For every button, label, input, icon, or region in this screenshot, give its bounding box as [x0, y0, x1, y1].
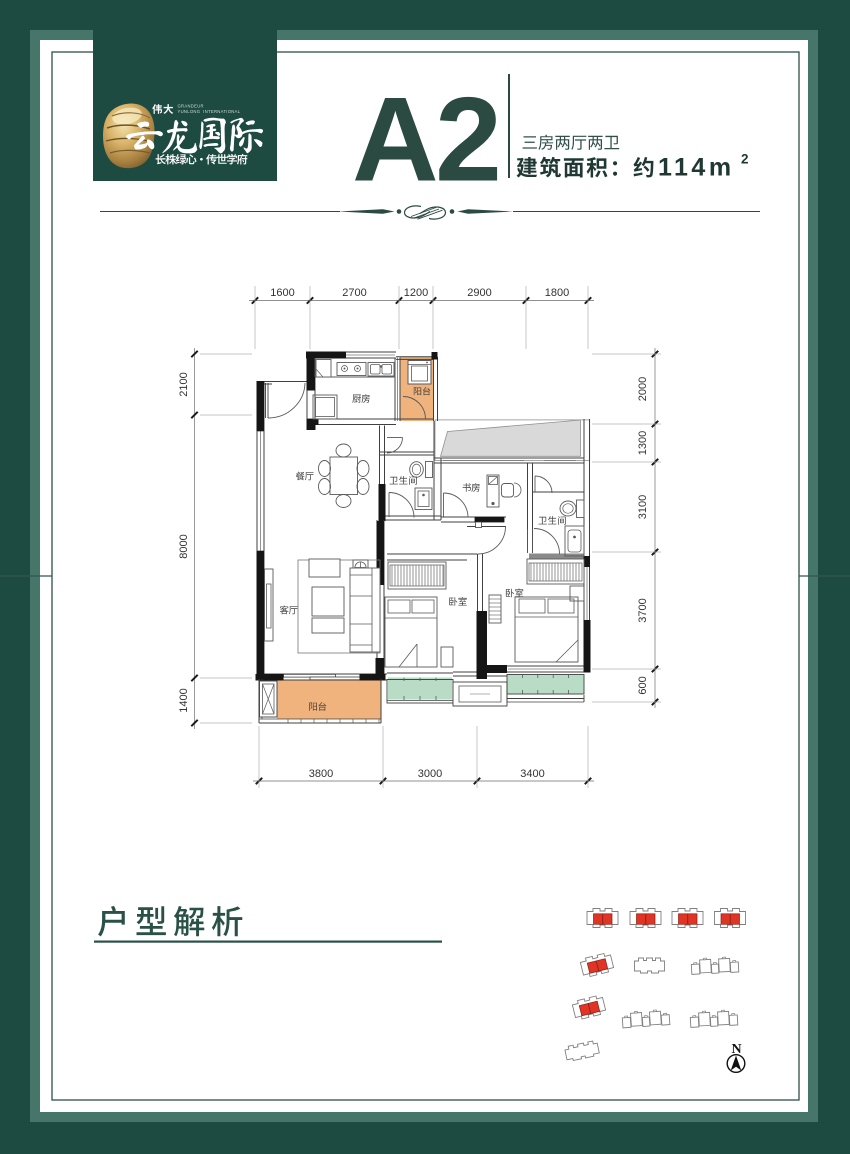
svg-text:1400: 1400	[178, 688, 190, 712]
svg-text:2: 2	[741, 152, 749, 167]
svg-text:A2: A2	[352, 73, 498, 207]
svg-text:3800: 3800	[309, 768, 333, 780]
svg-text:2700: 2700	[342, 287, 366, 299]
svg-text:600: 600	[637, 676, 649, 694]
svg-text:3100: 3100	[637, 495, 649, 519]
svg-text:1300: 1300	[637, 431, 649, 455]
svg-text:2900: 2900	[467, 287, 491, 299]
svg-text:3700: 3700	[637, 598, 649, 622]
svg-text:114m: 114m	[658, 154, 735, 182]
svg-text:3400: 3400	[520, 768, 544, 780]
svg-text:1800: 1800	[545, 287, 569, 299]
svg-text:GRANDEUR: GRANDEUR	[178, 104, 204, 109]
svg-text:1600: 1600	[270, 287, 294, 299]
svg-text:3000: 3000	[418, 768, 442, 780]
svg-text:2100: 2100	[178, 372, 190, 396]
svg-text:2000: 2000	[637, 377, 649, 401]
svg-text:8000: 8000	[178, 534, 190, 558]
svg-text:YUNLONG INTERNATIONAL: YUNLONG INTERNATIONAL	[178, 109, 241, 114]
svg-text:1200: 1200	[404, 287, 428, 299]
